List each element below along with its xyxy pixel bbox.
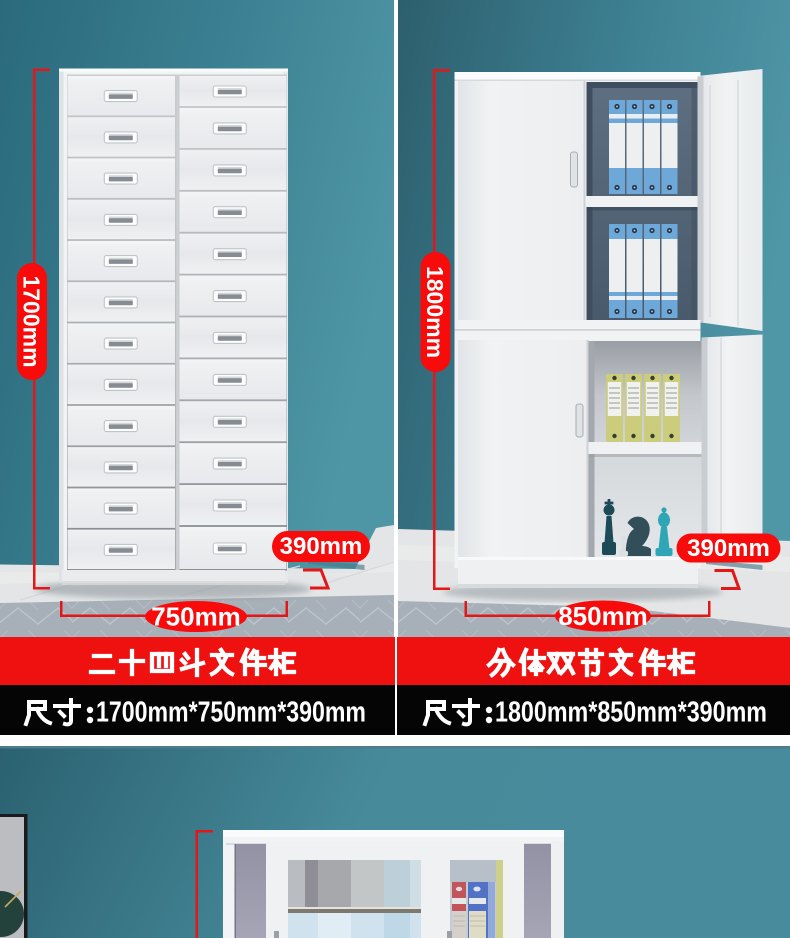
svg-text:1700mm: 1700mm: [19, 275, 45, 367]
svg-text:750mm: 750mm: [151, 602, 241, 632]
svg-text:390mm: 390mm: [280, 533, 363, 560]
svg-text:390mm: 390mm: [687, 535, 770, 562]
svg-text:1800mm*850mm*390mm: 1800mm*850mm*390mm: [495, 697, 767, 729]
svg-text:1700mm*750mm*390mm: 1700mm*750mm*390mm: [96, 697, 366, 729]
svg-text:1800mm: 1800mm: [422, 266, 448, 358]
svg-text:850mm: 850mm: [558, 601, 648, 631]
